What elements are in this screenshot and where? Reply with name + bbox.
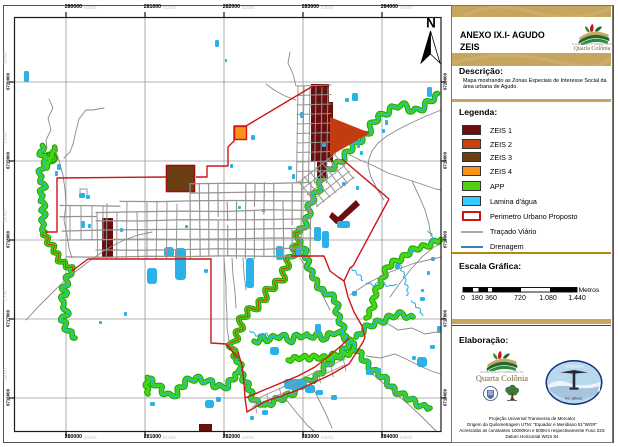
svg-text:N: N — [426, 16, 436, 31]
svg-text:RS - BRASIL: RS - BRASIL — [565, 397, 583, 401]
svg-text:CONDESUS: CONDESUS — [564, 365, 584, 369]
